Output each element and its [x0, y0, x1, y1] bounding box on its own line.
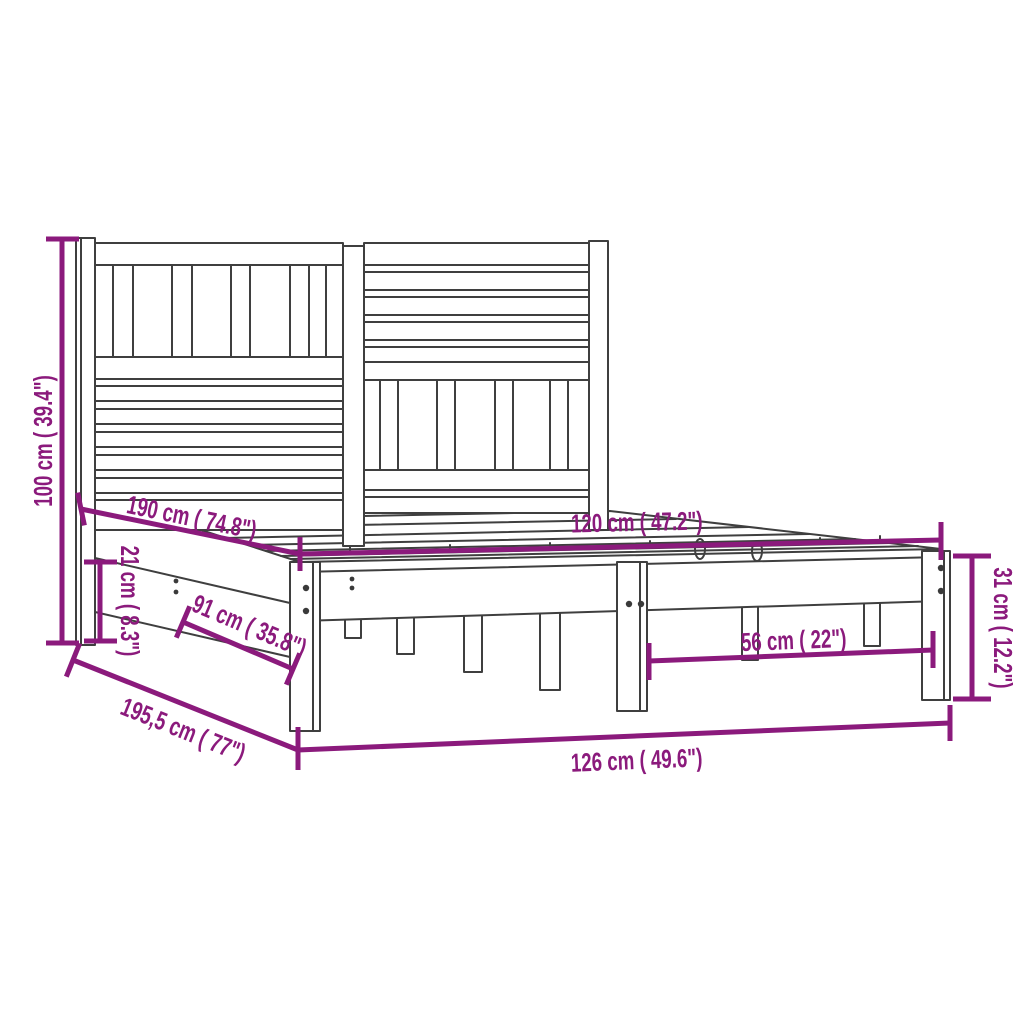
headboard-center-post	[343, 246, 364, 546]
headboard-right-post	[589, 241, 608, 530]
bed-drawing	[76, 238, 950, 731]
dimension-leg-spacing: 56 cm ( 22")	[649, 623, 933, 680]
headboard-left-post	[76, 238, 95, 645]
dimension-label-leg-spacing: 56 cm ( 22")	[740, 623, 847, 657]
front-right-leg	[922, 551, 950, 700]
dimension-frame-height: 31 cm ( 12.2")	[953, 556, 1018, 699]
dimension-label-inner-length: 190 cm ( 74.8")	[124, 489, 259, 545]
dimension-label-total-height: 100 cm ( 39.4")	[28, 375, 58, 507]
dimension-total-length: 195,5 cm ( 77")	[66, 643, 298, 770]
front-center-leg	[617, 562, 647, 711]
dimension-label-total-width: 126 cm ( 49.6")	[570, 742, 703, 777]
dimension-label-inner-width: 120 cm ( 47.2")	[571, 505, 703, 538]
dimension-label-frame-height: 31 cm ( 12.2")	[988, 567, 1018, 688]
dimension-label-left-rail-height: 21 cm ( 8.3")	[115, 546, 145, 657]
dimension-diagram-page: 100 cm ( 39.4") 190 cm ( 74.8") 120 cm (…	[0, 0, 1024, 1024]
dimension-total-height: 100 cm ( 39.4")	[28, 239, 79, 643]
dimension-total-width: 126 cm ( 49.6")	[298, 705, 950, 777]
bed-frame-dimension-diagram: 100 cm ( 39.4") 190 cm ( 74.8") 120 cm (…	[0, 0, 1024, 1024]
